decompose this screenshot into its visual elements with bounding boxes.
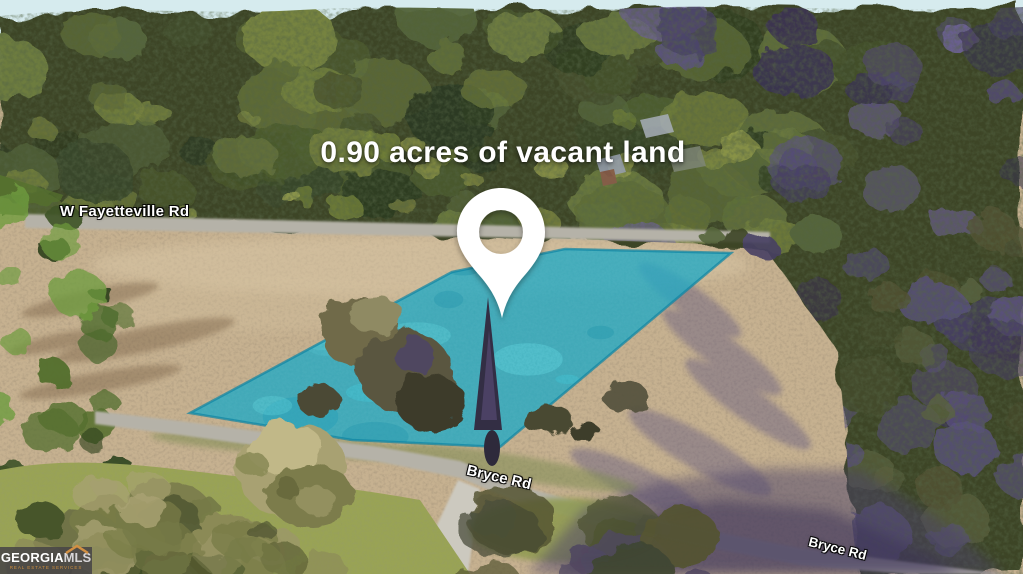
road-label-w-fayetteville: W Fayetteville Rd xyxy=(60,203,189,220)
watermark-brand: GEORGIA xyxy=(1,551,64,564)
watermark-tagline: REAL ESTATE SERVICES xyxy=(10,565,83,570)
house-roof-icon xyxy=(64,544,90,554)
watermark-brand-row: GEORGIA MLS xyxy=(1,551,91,564)
mls-watermark: GEORGIA MLS REAL ESTATE SERVICES xyxy=(0,547,92,574)
watermark-brand-suffix: MLS xyxy=(64,551,91,564)
acreage-annotation: 0.90 acres of vacant land xyxy=(320,136,685,170)
listing-photo: 0.90 acres of vacant land W Fayetteville… xyxy=(0,0,1023,574)
